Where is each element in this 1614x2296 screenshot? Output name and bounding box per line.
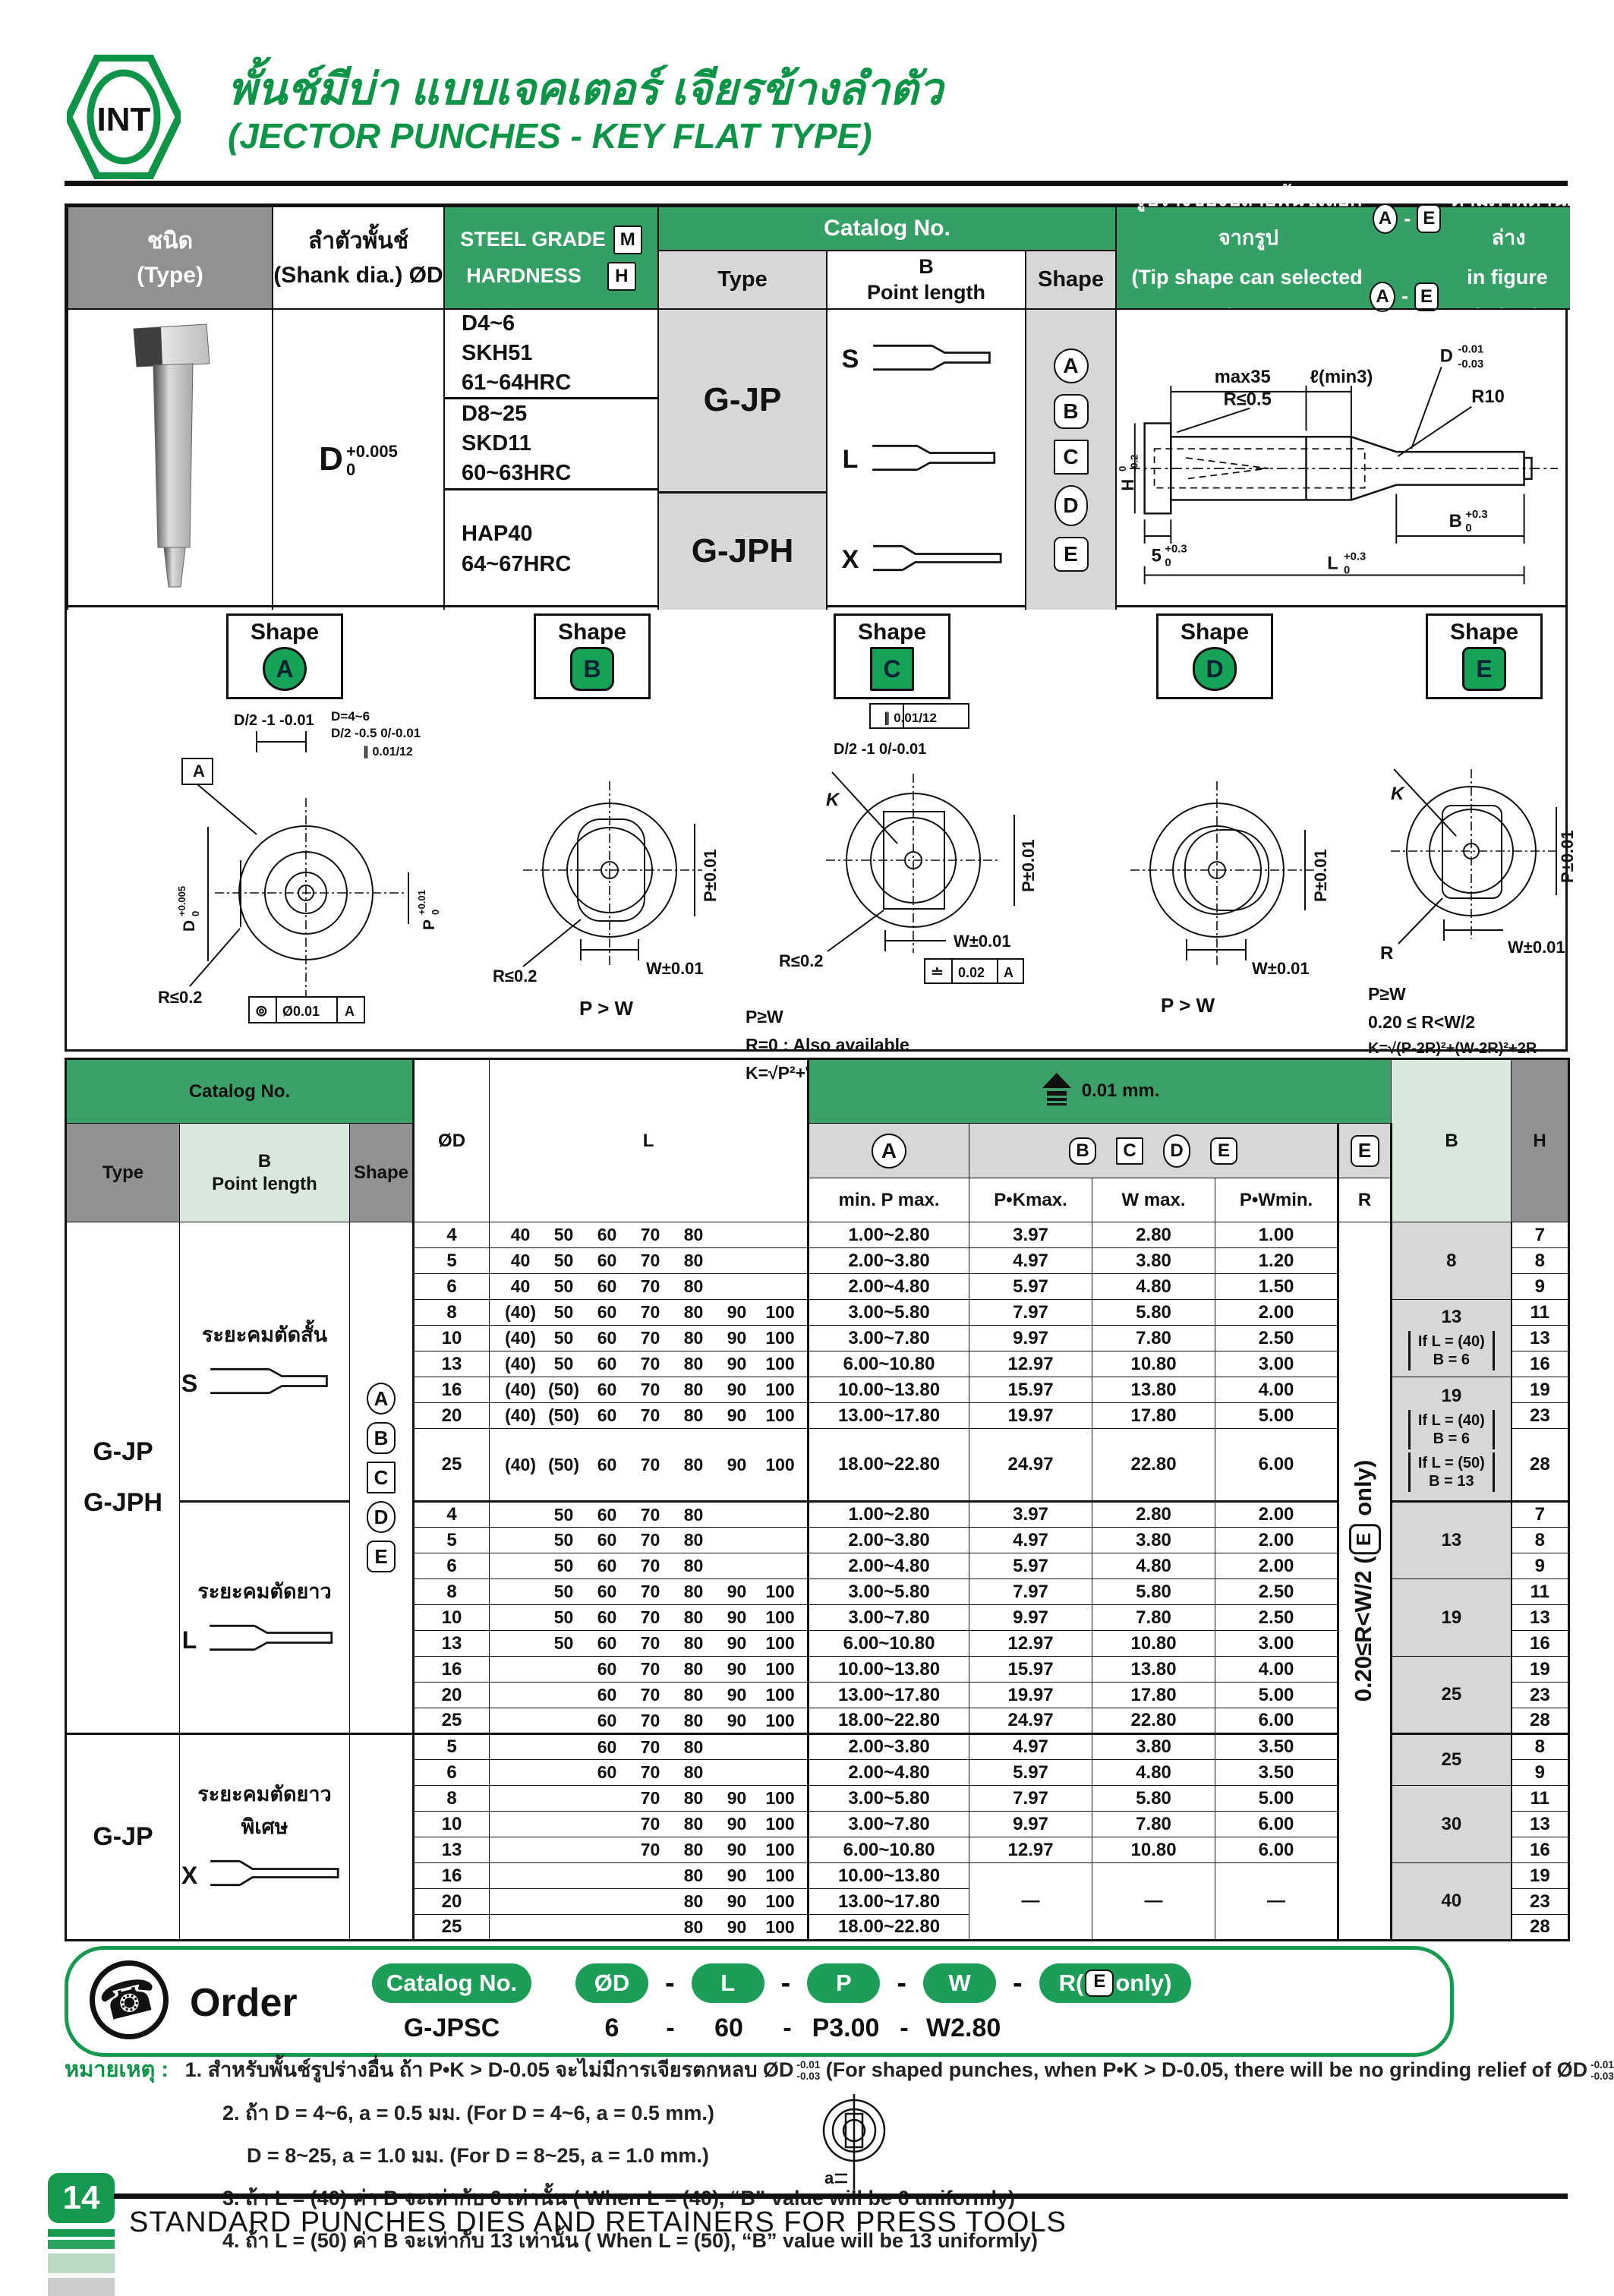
svg-text:R≤0.5: R≤0.5: [1224, 389, 1272, 410]
svg-text:P±0.01: P±0.01: [701, 849, 720, 902]
cell-l: (40)5060708090100: [490, 1300, 809, 1326]
cell-type: G-JPG-JPH: [66, 1222, 180, 1734]
cell-pk: 3.97: [969, 1502, 1092, 1528]
catalog-page: { "colors":{"brand_green":"#0d9447","ban…: [0, 0, 1614, 2296]
footer-bar: [48, 2229, 115, 2237]
cell-w: 13.80: [1092, 1657, 1215, 1683]
svg-text:R≤0.2: R≤0.2: [779, 951, 824, 970]
cell-pw: 3.00: [1215, 1351, 1338, 1377]
cell-od: 4: [414, 1502, 490, 1528]
badge-a-header: A: [809, 1124, 969, 1178]
shape-b-badge: B: [1054, 394, 1089, 429]
svg-text:5: 5: [1152, 546, 1162, 566]
svg-text:D=4~6: D=4~6: [331, 709, 370, 724]
cell-l: (40)(50)60708090100: [490, 1429, 809, 1502]
svg-text:+0.3: +0.3: [1344, 551, 1366, 563]
cell-w: 10.80: [1092, 1837, 1215, 1863]
r-range-note: 0.20≤R<W/2 (E only): [1349, 1460, 1381, 1702]
spec-col-shank: ลำตัวพั้นช์(Shank dia.) ØD: [272, 206, 443, 308]
cell-w: 5.80: [1092, 1786, 1215, 1812]
cell-w: 7.80: [1092, 1326, 1215, 1351]
cell-h: 9: [1512, 1760, 1569, 1786]
cell-l: 60708090100: [490, 1657, 809, 1683]
cell-pw: 2.00: [1215, 1502, 1338, 1528]
type-header: Type: [66, 1124, 180, 1222]
cell-l: 607080: [490, 1760, 809, 1786]
cell-a: 13.00~17.80: [809, 1889, 969, 1915]
cell-pw: 6.00: [1215, 1837, 1338, 1863]
svg-text:P: P: [421, 919, 438, 930]
cell-pw: 1.20: [1215, 1248, 1338, 1274]
cell-a: 10.00~13.80: [809, 1377, 969, 1403]
h-badge: H: [607, 262, 636, 291]
phone-icon: ☎: [90, 1960, 169, 2039]
press-arrow-icon: [1041, 1071, 1073, 1112]
cell-w: 5.80: [1092, 1300, 1215, 1326]
cell-od: 13: [414, 1837, 490, 1863]
svg-text:+0.01: +0.01: [416, 890, 427, 915]
b-point-length-header: BPoint length: [180, 1124, 350, 1222]
type-gjph: G-JPH: [659, 494, 826, 610]
cell-od: 20: [414, 1403, 490, 1429]
cell-h: 28: [1512, 1429, 1569, 1502]
svg-text:R: R: [1380, 943, 1393, 963]
cell-pw: 5.00: [1215, 1683, 1338, 1708]
svg-text:⊚: ⊚: [255, 1003, 268, 1020]
shape-c-note: P≥W: [746, 1007, 1092, 1027]
svg-text:+0.3: +0.3: [1165, 544, 1187, 556]
cell-pk: 12.97: [969, 1837, 1092, 1863]
cell-l: 607080: [490, 1734, 809, 1760]
cell-a: 18.00~22.80: [809, 1708, 969, 1734]
svg-text:K: K: [1391, 784, 1405, 804]
cell-a: 6.00~10.80: [809, 1631, 969, 1657]
shape-c-drawing: ∥ 0.01/12 D/2 -1 0/-0.01 K P±0.01 W±0.01…: [735, 699, 1092, 995]
svg-text:∥ 0.01/12: ∥ 0.01/12: [884, 711, 937, 725]
svg-text:max35: max35: [1215, 367, 1271, 387]
shape-section: ShapeA D +0.005 0 P: [65, 607, 1568, 1052]
dash: -: [781, 1967, 791, 2000]
cell-w: 17.80: [1092, 1403, 1215, 1429]
cell-od: 8: [414, 1300, 490, 1326]
note-2-figure: a: [812, 2093, 896, 2197]
cell-h: 8: [1512, 1734, 1569, 1760]
shape-b-badge: B: [1069, 1137, 1096, 1165]
cell-pw: 3.50: [1215, 1760, 1338, 1786]
cell-w: 3.80: [1092, 1528, 1215, 1553]
shape-d-drawing: P±0.01 W±0.01 P > W: [1118, 699, 1361, 1026]
shape-badge-list: A B C D E: [1025, 308, 1115, 610]
cell-od: 20: [414, 1683, 490, 1708]
cell-a: 6.00~10.80: [809, 1837, 969, 1863]
cell-a: 3.00~5.80: [809, 1300, 969, 1326]
svg-text:0: 0: [1118, 466, 1128, 471]
cell-b: 40: [1392, 1863, 1512, 1941]
cell-od: 10: [414, 1812, 490, 1837]
page-number: 14: [48, 2173, 115, 2223]
order-box: ☎ Order Catalog No. ØD - L - P - W - R(E…: [65, 1946, 1454, 2057]
cell-l: 5060708090100: [490, 1605, 809, 1631]
cell-pk: 24.97: [969, 1429, 1092, 1502]
shape-d-badge: D: [1054, 485, 1088, 526]
cell-pw: 4.00: [1215, 1657, 1338, 1683]
spec-table: ชนิด(Type) ลำตัวพั้นช์(Shank dia.) ØD ST…: [65, 203, 1568, 607]
svg-text:0: 0: [1465, 522, 1471, 535]
shape-panel-e: ShapeE K R P±0.01 W±0.01 P≥W 0.20 ≤ R<W/…: [1357, 613, 1578, 1058]
cell-l: 4050607080: [490, 1274, 809, 1300]
shape-e-badge: E: [1210, 1137, 1237, 1165]
svg-text:0: 0: [1165, 557, 1171, 569]
shape-panel-b: ShapeB P±0.01 W±0.01 R≤0.2 P > W: [488, 613, 731, 1030]
svg-text:+0.3: +0.3: [1465, 509, 1487, 521]
shape-c-badge: C: [367, 1462, 396, 1493]
cell-a: 2.00~3.80: [809, 1734, 969, 1760]
punch-profile-x-icon: [866, 540, 1010, 580]
cell-bp: ระยะคมตัดยาวพิเศษX: [180, 1734, 350, 1941]
shank-dim: D+0.0050: [272, 308, 443, 610]
dash: -: [897, 1967, 906, 2000]
spec-catalog-no: Catalog No.: [657, 206, 1115, 250]
cell-a: 10.00~13.80: [809, 1863, 969, 1889]
shape-c-badge: C: [870, 647, 914, 691]
shape-e-badge: E: [367, 1541, 396, 1572]
note-1: หมายเหตุ : 1. สำหรับพั้นช์รูปร่างอื่น ถ้…: [65, 2052, 1568, 2086]
cell-pw: 5.00: [1215, 1403, 1338, 1429]
cell-pk: 9.97: [969, 1605, 1092, 1631]
cell-pk: 9.97: [969, 1326, 1092, 1351]
cell-a: 2.00~3.80: [809, 1528, 969, 1553]
cell-w: 22.80: [1092, 1708, 1215, 1734]
cell-a: 13.00~17.80: [809, 1683, 969, 1708]
svg-text:A: A: [345, 1004, 355, 1019]
cell-pk: 5.97: [969, 1553, 1092, 1579]
cell-pw: 2.00: [1215, 1300, 1338, 1326]
od-pill: ØD: [575, 1963, 648, 2003]
svg-text:H: H: [1118, 479, 1137, 491]
cell-a: 1.00~2.80: [809, 1222, 969, 1248]
cell-h: 19: [1512, 1657, 1569, 1683]
cell-w: 22.80: [1092, 1429, 1215, 1502]
cell-w: 10.80: [1092, 1631, 1215, 1657]
cell-pw: 3.00: [1215, 1631, 1338, 1657]
cell-od: 25: [414, 1915, 490, 1941]
e-badge: E: [1085, 1970, 1114, 1997]
cell-h: 13: [1512, 1605, 1569, 1631]
steel-row: D4~6SKH5161~64HRC: [445, 310, 657, 399]
cell-w: 3.80: [1092, 1248, 1215, 1274]
svg-text:ℓ(min3): ℓ(min3): [1310, 367, 1373, 387]
p-pill: P: [807, 1963, 880, 2003]
cell-pk: 7.97: [969, 1786, 1092, 1812]
cell-od: 13: [414, 1351, 490, 1377]
cell-l: 8090100: [490, 1863, 809, 1889]
svg-text:-0.2: -0.2: [1129, 455, 1140, 471]
cell-od: 6: [414, 1553, 490, 1579]
e-badge: E: [1417, 204, 1441, 233]
cell-h: 9: [1512, 1274, 1569, 1300]
svg-text:D/2 -1 -0.01: D/2 -1 -0.01: [234, 712, 314, 729]
cell-pk: 9.97: [969, 1812, 1092, 1837]
dash: -: [665, 1967, 675, 2000]
cell-l: (40)5060708090100: [490, 1326, 809, 1351]
cell-a: 3.00~7.80: [809, 1812, 969, 1837]
dimension-table: Catalog No. ØD L 0.01 mm. B H Type BPoin…: [65, 1058, 1570, 1941]
svg-text:W±0.01: W±0.01: [1252, 959, 1310, 978]
cell-pw: 4.00: [1215, 1377, 1338, 1403]
svg-text:R≤0.2: R≤0.2: [158, 988, 203, 1007]
svg-text:D/2 -0.5 0/-0.01: D/2 -0.5 0/-0.01: [331, 726, 421, 740]
cell-a: 3.00~5.80: [809, 1579, 969, 1605]
cell-w: 10.80: [1092, 1351, 1215, 1377]
cell-od: 13: [414, 1631, 490, 1657]
b-col-header: B: [1392, 1059, 1512, 1222]
cell-h: 11: [1512, 1300, 1569, 1326]
cell-b: 19: [1392, 1579, 1512, 1657]
cell-b: 13If L = (40)B = 6: [1392, 1300, 1512, 1377]
svg-text:a: a: [824, 2168, 834, 2187]
od-header: ØD: [414, 1059, 490, 1222]
cell-h: 23: [1512, 1683, 1569, 1708]
cell-b: 13: [1392, 1502, 1512, 1579]
shape-c-note: R=0 : Also available: [746, 1035, 1092, 1055]
svg-text:W±0.01: W±0.01: [1508, 938, 1565, 957]
cell-bp: ระยะคมตัดสั้นS: [180, 1222, 350, 1502]
tech-drawing: max35 ℓ(min3) D -0.01 -0.03 R≤0.5 R10 H …: [1115, 308, 1570, 610]
cell-h: 9: [1512, 1553, 1569, 1579]
cell-pk: 19.97: [969, 1683, 1092, 1708]
cell-l: 5060708090100: [490, 1579, 809, 1605]
badge-e-header: E: [1338, 1124, 1392, 1178]
cell-pk: 15.97: [969, 1377, 1092, 1403]
svg-text:K: K: [826, 790, 840, 810]
catalog-no-header: Catalog No.: [66, 1059, 414, 1124]
cell-w: 4.80: [1092, 1760, 1215, 1786]
cell-l: 50607080: [490, 1528, 809, 1553]
svg-text:B: B: [1449, 511, 1462, 531]
cell-od: 5: [414, 1734, 490, 1760]
cell-a: 10.00~13.80: [809, 1657, 969, 1683]
pk-max-header: P•Kmax.: [969, 1178, 1092, 1222]
w-max-header: W max.: [1092, 1178, 1215, 1222]
e-badge: E: [1349, 1524, 1381, 1554]
type-gjp: G-JP: [659, 310, 826, 494]
dash: -: [1013, 1967, 1023, 2000]
cell-l: 60708090100: [490, 1683, 809, 1708]
cell-pw: 2.50: [1215, 1579, 1338, 1605]
cell-pw: 2.50: [1215, 1605, 1338, 1631]
cell-w: 13.80: [1092, 1377, 1215, 1403]
steel-row: D8~25SKD1160~63HRC: [445, 399, 657, 490]
cell-b: 30: [1392, 1786, 1512, 1863]
cell-h: 8: [1512, 1528, 1569, 1553]
cell-l: 4050607080: [490, 1248, 809, 1274]
svg-text:D/2 -1 0/-0.01: D/2 -1 0/-0.01: [834, 741, 926, 758]
cell-h: 16: [1512, 1837, 1569, 1863]
footer-bar: [48, 2253, 115, 2273]
cell-pw: 1.50: [1215, 1274, 1338, 1300]
svg-text:R≤0.2: R≤0.2: [493, 967, 537, 986]
shape-b-drawing: P±0.01 W±0.01 R≤0.2 P > W: [488, 699, 731, 1026]
badges-bcde-header: B C D E: [969, 1124, 1338, 1178]
shape-e-note: K=√(P-2R)²+(W-2R)²+2R: [1368, 1040, 1578, 1058]
cell-h: 19: [1512, 1863, 1569, 1889]
cell-pw: 1.00: [1215, 1222, 1338, 1248]
shape-a-badge: A: [263, 647, 307, 691]
svg-text:0: 0: [1344, 564, 1350, 576]
cell-a: 18.00~22.80: [809, 1915, 969, 1941]
shape-panel-c: ShapeC ∥ 0.01/12 D/2 -1 0/-0.01 K P±0.01…: [735, 613, 1092, 1083]
cell-pw: 6.00: [1215, 1812, 1338, 1837]
svg-text:L: L: [1327, 553, 1338, 574]
cell-a: 3.00~7.80: [809, 1605, 969, 1631]
svg-text:Ø0.01: Ø0.01: [282, 1004, 320, 1019]
svg-text:0: 0: [190, 911, 201, 916]
cell-od: 6: [414, 1274, 490, 1300]
svg-text:P > W: P > W: [1161, 994, 1215, 1017]
svg-text:≐: ≐: [931, 964, 944, 981]
spec-col-shape: Shape: [1025, 250, 1115, 308]
logo-text: INT: [97, 101, 151, 138]
cell-h: 16: [1512, 1631, 1569, 1657]
cell-r: 0.20≤R<W/2 (E only): [1338, 1222, 1392, 1941]
cell-a: 3.00~7.80: [809, 1326, 969, 1351]
l-header: L: [490, 1059, 809, 1222]
cell-w: 5.80: [1092, 1579, 1215, 1605]
svg-text:0: 0: [430, 910, 441, 915]
svg-text:0.02: 0.02: [958, 965, 985, 980]
cell-pw: 5.00: [1215, 1786, 1338, 1812]
shape-e-note: P≥W: [1368, 984, 1578, 1004]
cell-a: 2.00~4.80: [809, 1274, 969, 1300]
cell-od: 16: [414, 1657, 490, 1683]
steel-row: HAP4064~67HRC: [445, 490, 657, 608]
cell-h: 11: [1512, 1786, 1569, 1812]
cell-h: 13: [1512, 1326, 1569, 1351]
footer-text: STANDARD PUNCHES DIES AND RETAINERS FOR …: [129, 2206, 1067, 2239]
r-pill: R(Eonly): [1039, 1963, 1192, 2003]
punch-profile-l-icon: [865, 440, 1010, 480]
cell-od: 20: [414, 1889, 490, 1915]
shape-b-badge: B: [570, 647, 614, 691]
cell-l: 5060708090100: [490, 1631, 809, 1657]
cell-od: 8: [414, 1786, 490, 1812]
shape-a-badge: A: [367, 1383, 396, 1414]
min-p-max-header: min. P max.: [809, 1178, 969, 1222]
svg-text:P±0.01: P±0.01: [1558, 830, 1577, 883]
cell-h: 23: [1512, 1403, 1569, 1429]
cell-b: 25: [1392, 1734, 1512, 1786]
cell-l: 8090100: [490, 1889, 809, 1915]
cell-h: 28: [1512, 1708, 1569, 1734]
shape-e-badge: E: [1462, 647, 1506, 691]
cell-a: 18.00~22.80: [809, 1429, 969, 1502]
cell-od: 10: [414, 1326, 490, 1351]
svg-text:W±0.01: W±0.01: [954, 932, 1011, 951]
spec-col-steel: STEEL GRADEM HARDNESSH: [443, 206, 657, 308]
cell-od: 5: [414, 1248, 490, 1274]
cell-pk: 4.97: [969, 1734, 1092, 1760]
note-2b: D = 8~25, a = 1.0 มม. (For D = 8~25, a =…: [247, 2139, 1568, 2171]
cell-w: 4.80: [1092, 1553, 1215, 1579]
cell-h: 19: [1512, 1377, 1569, 1403]
order-label: Order: [190, 1980, 298, 2026]
cell-od: 25: [414, 1708, 490, 1734]
cell-l: 708090100: [490, 1837, 809, 1863]
footer-bar: [48, 2278, 115, 2296]
cell-pw: 6.00: [1215, 1708, 1338, 1734]
cell-a: 1.00~2.80: [809, 1502, 969, 1528]
page-title-english: (JECTOR PUNCHES - KEY FLAT TYPE): [228, 115, 872, 156]
cell-pk: 7.97: [969, 1579, 1092, 1605]
cell-l: 708090100: [490, 1812, 809, 1837]
cell-od: 16: [414, 1377, 490, 1403]
m-badge: M: [613, 225, 642, 254]
steel-grades: D4~6SKH5161~64HRC D8~25SKD1160~63HRC HAP…: [443, 308, 657, 610]
cell-pw: 2.50: [1215, 1326, 1338, 1351]
svg-text:-0.03: -0.03: [1458, 358, 1483, 371]
cell-pw: 2.00: [1215, 1553, 1338, 1579]
cell-b: 25: [1392, 1657, 1512, 1734]
cell-b: 19If L = (40)B = 6If L = (50)B = 13: [1392, 1377, 1512, 1502]
a-badge: A: [1370, 282, 1395, 312]
svg-text:A: A: [193, 762, 205, 781]
pw-min-header: P•Wmin.: [1215, 1178, 1338, 1222]
cell-w: 7.80: [1092, 1812, 1215, 1837]
cell-a: 6.00~10.80: [809, 1351, 969, 1377]
cell-pk: 12.97: [969, 1351, 1092, 1377]
cell-l: 50607080: [490, 1502, 809, 1528]
svg-text:A: A: [1004, 965, 1013, 980]
cell-h: 11: [1512, 1579, 1569, 1605]
svg-text:+0.005: +0.005: [176, 886, 188, 916]
shape-header: Shape: [350, 1124, 414, 1222]
cell-h: 8: [1512, 1248, 1569, 1274]
cell-l: (40)(50)60708090100: [490, 1403, 809, 1429]
cell-w: 2.80: [1092, 1502, 1215, 1528]
shape-d-badge: D: [367, 1501, 396, 1533]
cell-h: 16: [1512, 1351, 1569, 1377]
cell-l: 50607080: [490, 1553, 809, 1579]
cell-b: 8: [1392, 1222, 1512, 1300]
shape-a-drawing: D +0.005 0 P +0.01 0 A D/2 -1 -0.01 D=4~…: [143, 699, 469, 1026]
cell-h: 23: [1512, 1889, 1569, 1915]
cell-a: 13.00~17.80: [809, 1403, 969, 1429]
punch-drawing: max35 ℓ(min3) D -0.01 -0.03 R≤0.5 R10 H …: [1118, 311, 1569, 609]
cell-pw: 2.00: [1215, 1528, 1338, 1553]
cell-od: 16: [414, 1863, 490, 1889]
a-badge: A: [1373, 203, 1398, 234]
cell-pk: —: [969, 1863, 1092, 1941]
cell-od: 5: [414, 1528, 490, 1553]
cell-w: —: [1092, 1863, 1215, 1941]
cell-w: 7.80: [1092, 1605, 1215, 1631]
cell-type: G-JP: [66, 1734, 180, 1941]
svg-text:∥ 0.01/12: ∥ 0.01/12: [363, 746, 413, 758]
cell-shape: ABCDE: [350, 1222, 414, 1734]
cell-pw: —: [1215, 1863, 1338, 1941]
svg-text:D: D: [1440, 345, 1453, 366]
cell-pk: 5.97: [969, 1760, 1092, 1786]
catalog-types: G-JP G-JPH: [657, 308, 826, 610]
punch-photo: [67, 308, 272, 610]
footer-bar: [48, 2240, 115, 2249]
svg-text:W±0.01: W±0.01: [646, 959, 704, 978]
h-col-header: H: [1512, 1059, 1569, 1222]
cell-od: 4: [414, 1222, 490, 1248]
cell-l: (40)(50)60708090100: [490, 1377, 809, 1403]
page-title-thai: พั้นช์มีบ่า แบบเจคเตอร์ เจียรข้างลำตัว: [228, 53, 943, 124]
cell-h: 7: [1512, 1222, 1569, 1248]
